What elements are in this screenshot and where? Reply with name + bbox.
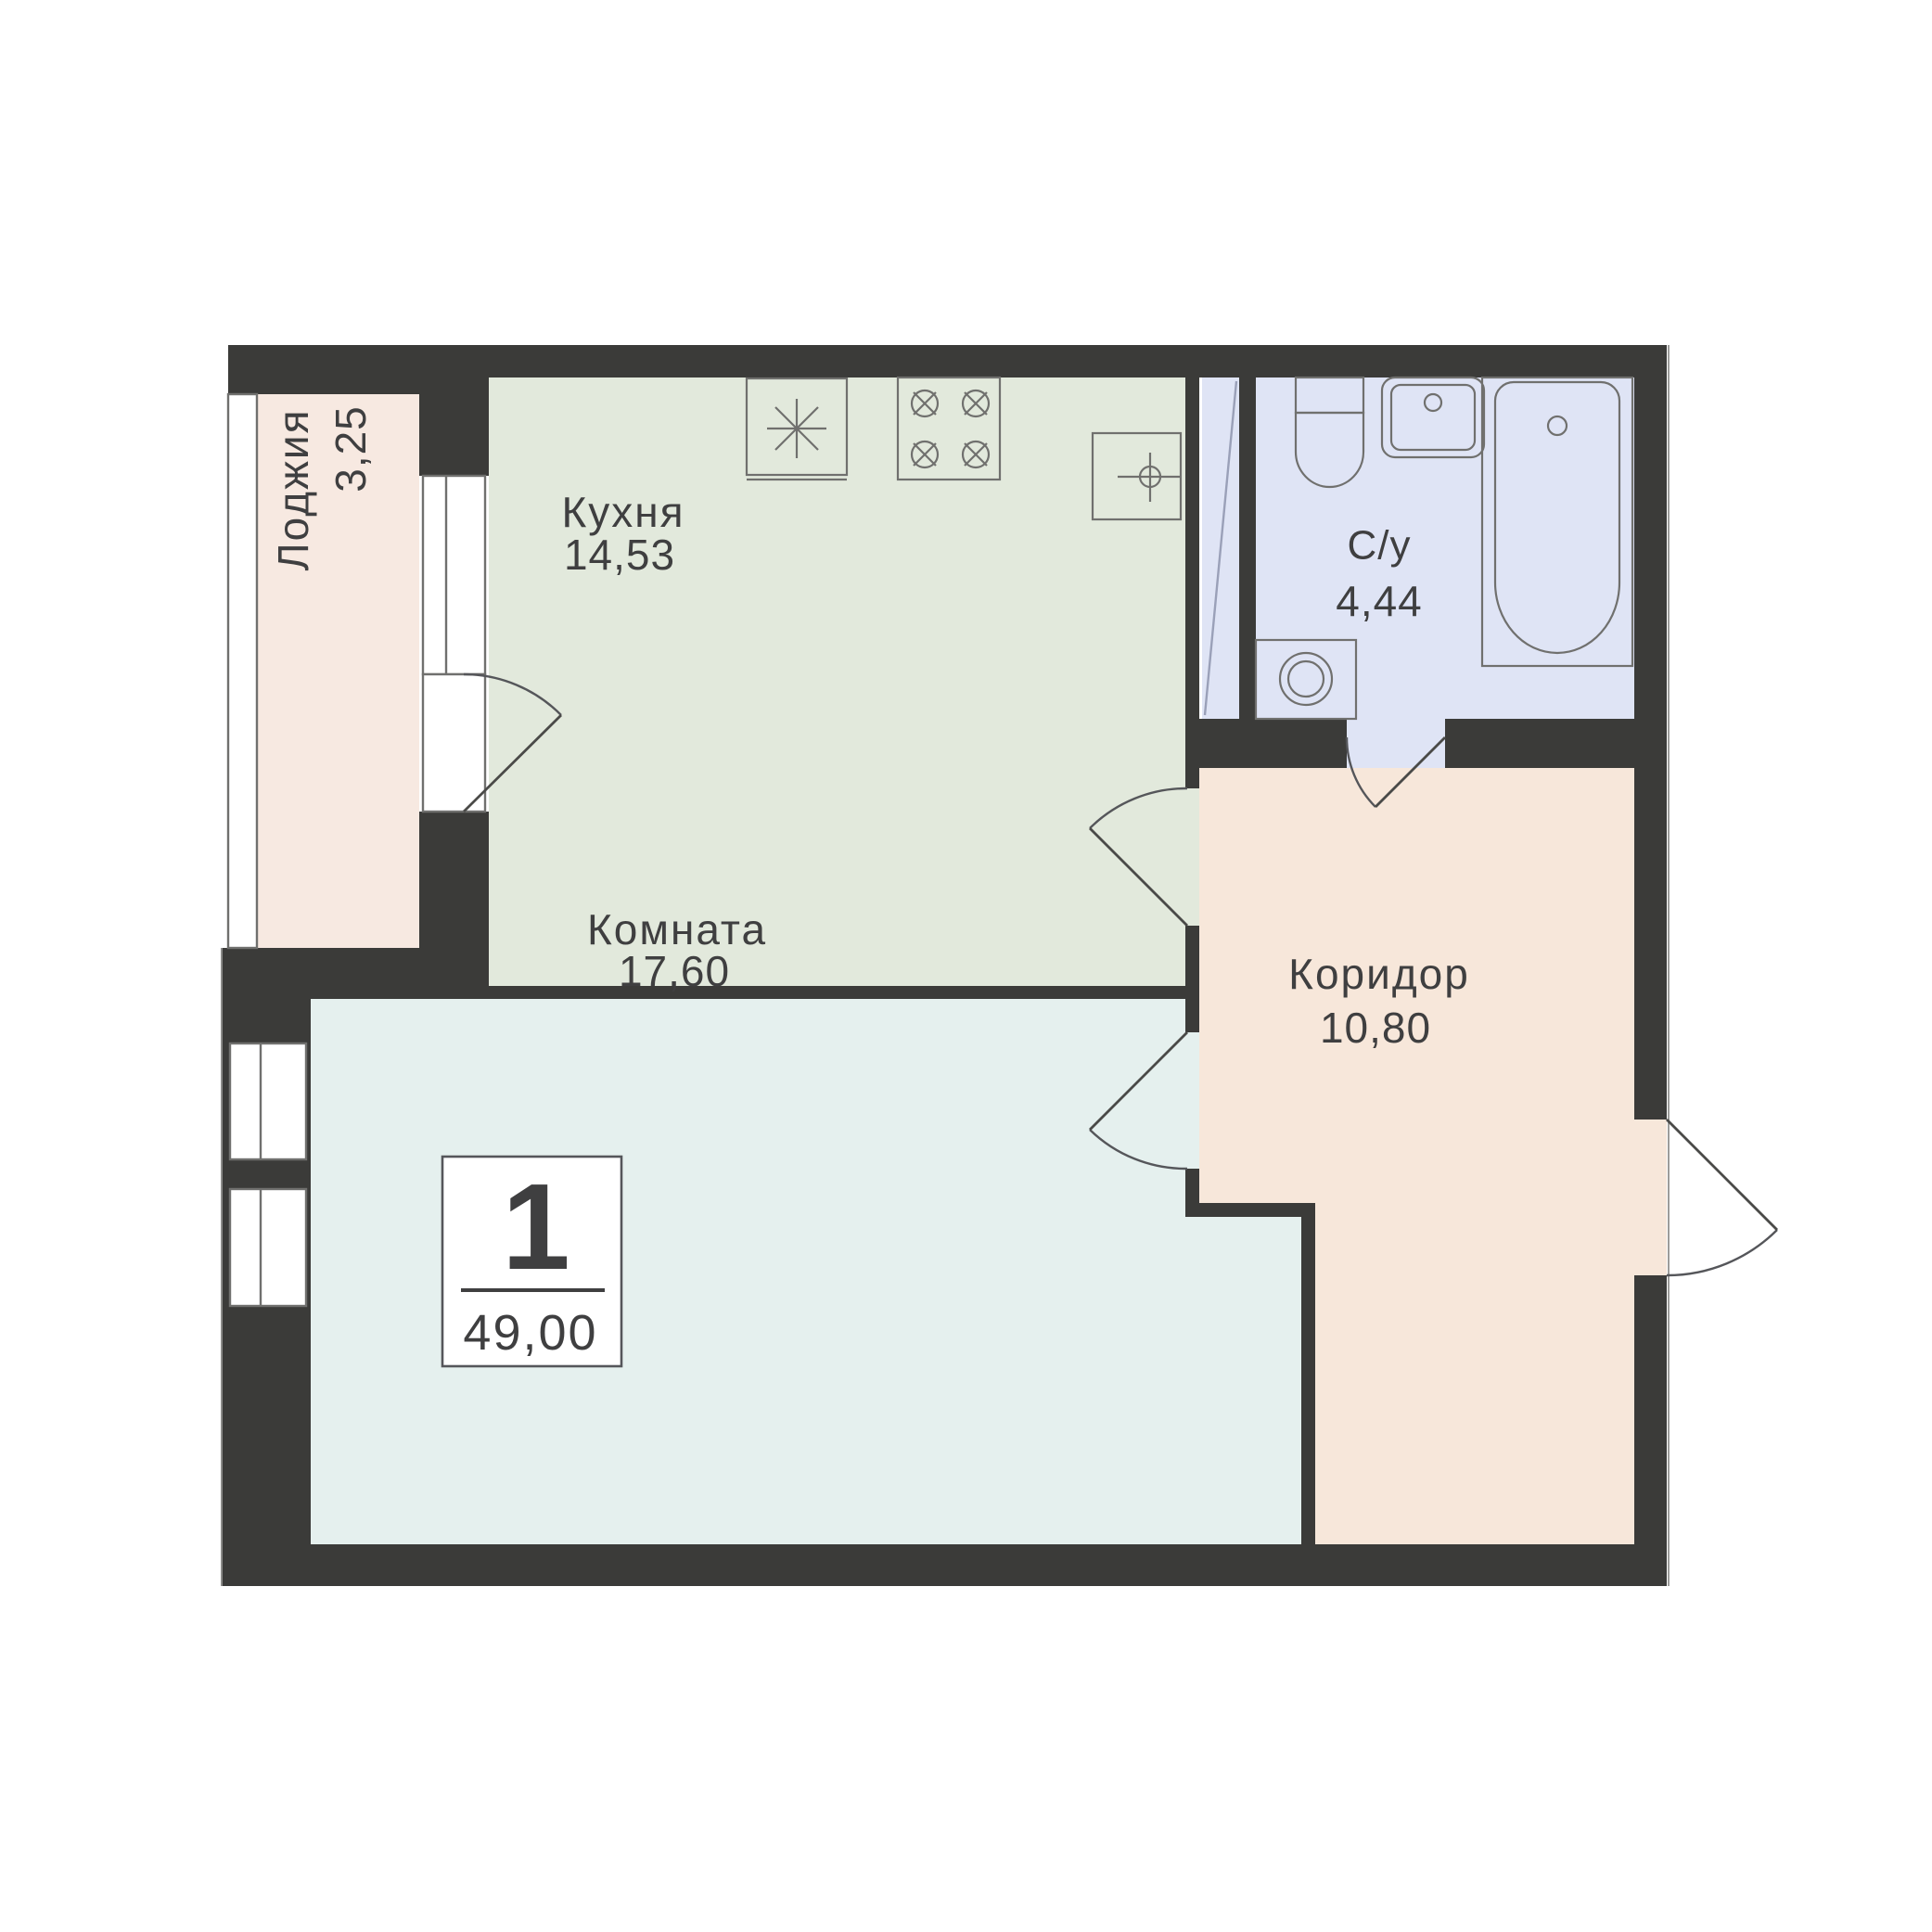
entrance-door-leaf [1667,1120,1777,1230]
wall-corridor-jog [1185,1203,1315,1217]
balcony-window [423,476,485,674]
floor-plan-page: Лоджия 3,25 Кухня 14,53 С/у 4,44 Коридор… [0,0,1932,1932]
badge-total-area: 49,00 [463,1305,597,1361]
bathroom-floor [1256,377,1634,768]
wall-shaft-right [1239,377,1256,719]
room-window-1 [230,1043,306,1159]
kitchen-area: 14,53 [564,531,675,579]
wall-balcony-col-top [419,377,489,476]
room-window-2 [230,1189,306,1306]
wall-bath-bottom-right [1445,719,1634,768]
room-area: 17,60 [619,947,730,995]
apartment-badge: 1 49,00 [442,1157,621,1366]
badge-rooms-count: 1 [502,1158,569,1295]
wall-bottom [221,1544,1667,1586]
wall-top-main [419,345,1667,377]
wall-kitchen-corridor-upper [1185,377,1199,788]
loggia-glazing [228,394,257,948]
entrance-door-arc [1667,1230,1777,1275]
wall-top-loggia [228,345,419,394]
wall-right-upper [1634,377,1667,1120]
loggia-area: 3,25 [326,405,375,493]
wall-corridor-chunk-mid [1185,926,1199,1032]
wall-right-lower [1634,1275,1667,1586]
bathroom-area: 4,44 [1336,577,1423,625]
wall-bath-bottom-left [1199,719,1347,768]
wall-kitchen-room [311,986,1199,999]
wall-balcony-col-bottom [419,812,489,986]
entrance-door [1667,1120,1777,1275]
floor-plan: Лоджия 3,25 Кухня 14,53 С/у 4,44 Коридор… [0,0,1932,1932]
wall-room-corridor-lower [1301,1217,1315,1544]
corridor-area: 10,80 [1320,1004,1431,1052]
loggia-label: Лоджия [269,409,317,571]
corridor-label: Коридор [1288,950,1470,998]
bathroom-label: С/у [1348,523,1412,569]
kitchen-label: Кухня [561,488,685,536]
